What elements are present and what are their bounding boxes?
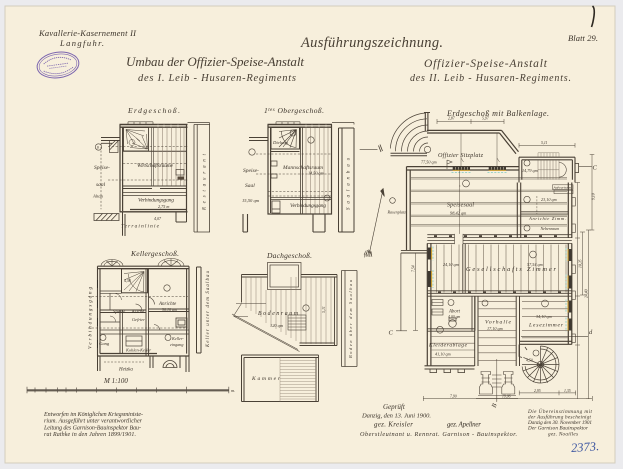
- svg-text:Offizier-Speise-Anstalt: Offizier-Speise-Anstalt: [424, 58, 548, 70]
- svg-text:Leitung des Garnison-Bauinspek: Leitung des Garnison-Bauinspektor Bau-: [43, 425, 141, 431]
- svg-text:Erdgeschoß.: Erdgeschoß.: [127, 106, 180, 115]
- svg-text:Aufwartezim.: Aufwartezim.: [553, 186, 573, 190]
- svg-text:Kavallerie-Kasernement II: Kavallerie-Kasernement II: [38, 28, 137, 38]
- svg-text:Lesezimmer: Lesezimmer: [528, 323, 564, 329]
- svg-text:gez. Apellner: gez. Apellner: [447, 421, 481, 429]
- svg-text:2373.: 2373.: [571, 439, 600, 455]
- svg-text:des I. Leib - Husaren-Regimen: des I. Leib - Husaren-Regiments: [138, 73, 296, 84]
- svg-text:Geprüft: Geprüft: [383, 403, 406, 411]
- svg-text:Nebenraum: Nebenraum: [540, 226, 560, 231]
- svg-text:Oberstleutnant u. Rennrat. G: Oberstleutnant u. Rennrat. Garnison - Ba…: [360, 431, 517, 438]
- svg-text:Heizka: Heizka: [118, 368, 133, 373]
- svg-text:Saal: Saal: [245, 183, 255, 189]
- svg-text:Verbindungsgang: Verbindungsgang: [138, 198, 174, 204]
- svg-text:Küche: Küche: [131, 310, 145, 315]
- svg-text:Gang: Gang: [99, 341, 110, 346]
- svg-text:Terrainlinie: Terrainlinie: [121, 224, 160, 230]
- svg-text:eingang: eingang: [170, 342, 184, 347]
- svg-text:Keller unter dem Saalbau: Keller unter dem Saalbau: [206, 270, 211, 348]
- svg-text:Gefrier: Gefrier: [132, 317, 145, 322]
- svg-text:Dachgeschoß.: Dachgeschoß.: [266, 251, 312, 260]
- svg-text:Speise: Speise: [113, 310, 126, 315]
- svg-text:Danzig, den 13. Juni 1900.: Danzig, den 13. Juni 1900.: [361, 413, 431, 420]
- svg-text:120 qm: 120 qm: [270, 323, 283, 328]
- svg-text:Kleiderablage: Kleiderablage: [428, 343, 468, 349]
- svg-text:Blatt 29.: Blatt 29.: [568, 33, 598, 43]
- svg-text:Altan: Altan: [92, 194, 104, 199]
- svg-text:C: C: [593, 165, 598, 172]
- svg-text:Verbindungsgang: Verbindungsgang: [290, 203, 326, 209]
- svg-text:Langfuhr.: Langfuhr.: [59, 38, 104, 48]
- svg-text:Speise-: Speise-: [243, 168, 259, 174]
- svg-text:gez. Noailles: gez. Noailles: [548, 432, 578, 438]
- svg-text:Speisesaal: Speisesaal: [447, 203, 474, 209]
- svg-text:m.: m.: [231, 388, 235, 393]
- svg-text:Speise-: Speise-: [94, 165, 110, 171]
- svg-text:rat Rathke in den Jahren 1899/: rat Rathke in den Jahren 1899/1901.: [44, 432, 136, 438]
- svg-text:Wirtschaftsräume: Wirtschaftsräume: [137, 162, 174, 169]
- svg-text:Kellergeschoß.: Kellergeschoß.: [130, 249, 179, 258]
- svg-text:Dielung: Dielung: [272, 140, 289, 145]
- svg-text:9: 9: [97, 145, 99, 150]
- svg-text:rium. Ausgeführt unter verant: rium. Ausgeführt unter verantwortlicher: [44, 418, 143, 425]
- svg-text:Entworfen im Königlichen Krieg: Entworfen im Königlichen Kriegsministe-: [43, 411, 143, 418]
- svg-text:Verbindungsgang: Verbindungsgang: [89, 287, 94, 350]
- svg-text:Keller-: Keller-: [171, 336, 184, 341]
- svg-text:Boden über dem Saalbau: Boden über dem Saalbau: [348, 280, 353, 358]
- svg-text:Vorhalle: Vorhalle: [485, 320, 512, 326]
- svg-text:Saalanbau: Saalanbau: [347, 157, 352, 210]
- svg-text:Bodenraum: Bodenraum: [258, 311, 298, 317]
- svg-text:Erdgeschoß mit Balkenlage.: Erdgeschoß mit Balkenlage.: [446, 109, 549, 118]
- svg-text:des II. Leib - Husaren-Regim: des II. Leib - Husaren-Regiments.: [410, 73, 571, 84]
- svg-text:Anrichte Zimm.: Anrichte Zimm.: [528, 216, 566, 221]
- svg-text:saal: saal: [96, 182, 106, 188]
- svg-text:Kohlen-Keller: Kohlen-Keller: [125, 348, 151, 353]
- svg-text:Abort: Abort: [448, 310, 461, 315]
- svg-text:Rasenplatz: Rasenplatz: [387, 210, 407, 215]
- svg-text:Ausführungszeichnung.: Ausführungszeichnung.: [300, 35, 443, 51]
- svg-text:C: C: [389, 330, 394, 337]
- svg-text:M 1:100: M 1:100: [103, 377, 128, 385]
- svg-text:Gesellschafts Zimmer: Gesellschafts Zimmer: [466, 266, 557, 273]
- svg-text:Umbau der Offizier-Speise-Anst: Umbau der Offizier-Speise-Anstalt: [126, 54, 304, 69]
- svg-text:gez. Kreisler: gez. Kreisler: [374, 421, 413, 429]
